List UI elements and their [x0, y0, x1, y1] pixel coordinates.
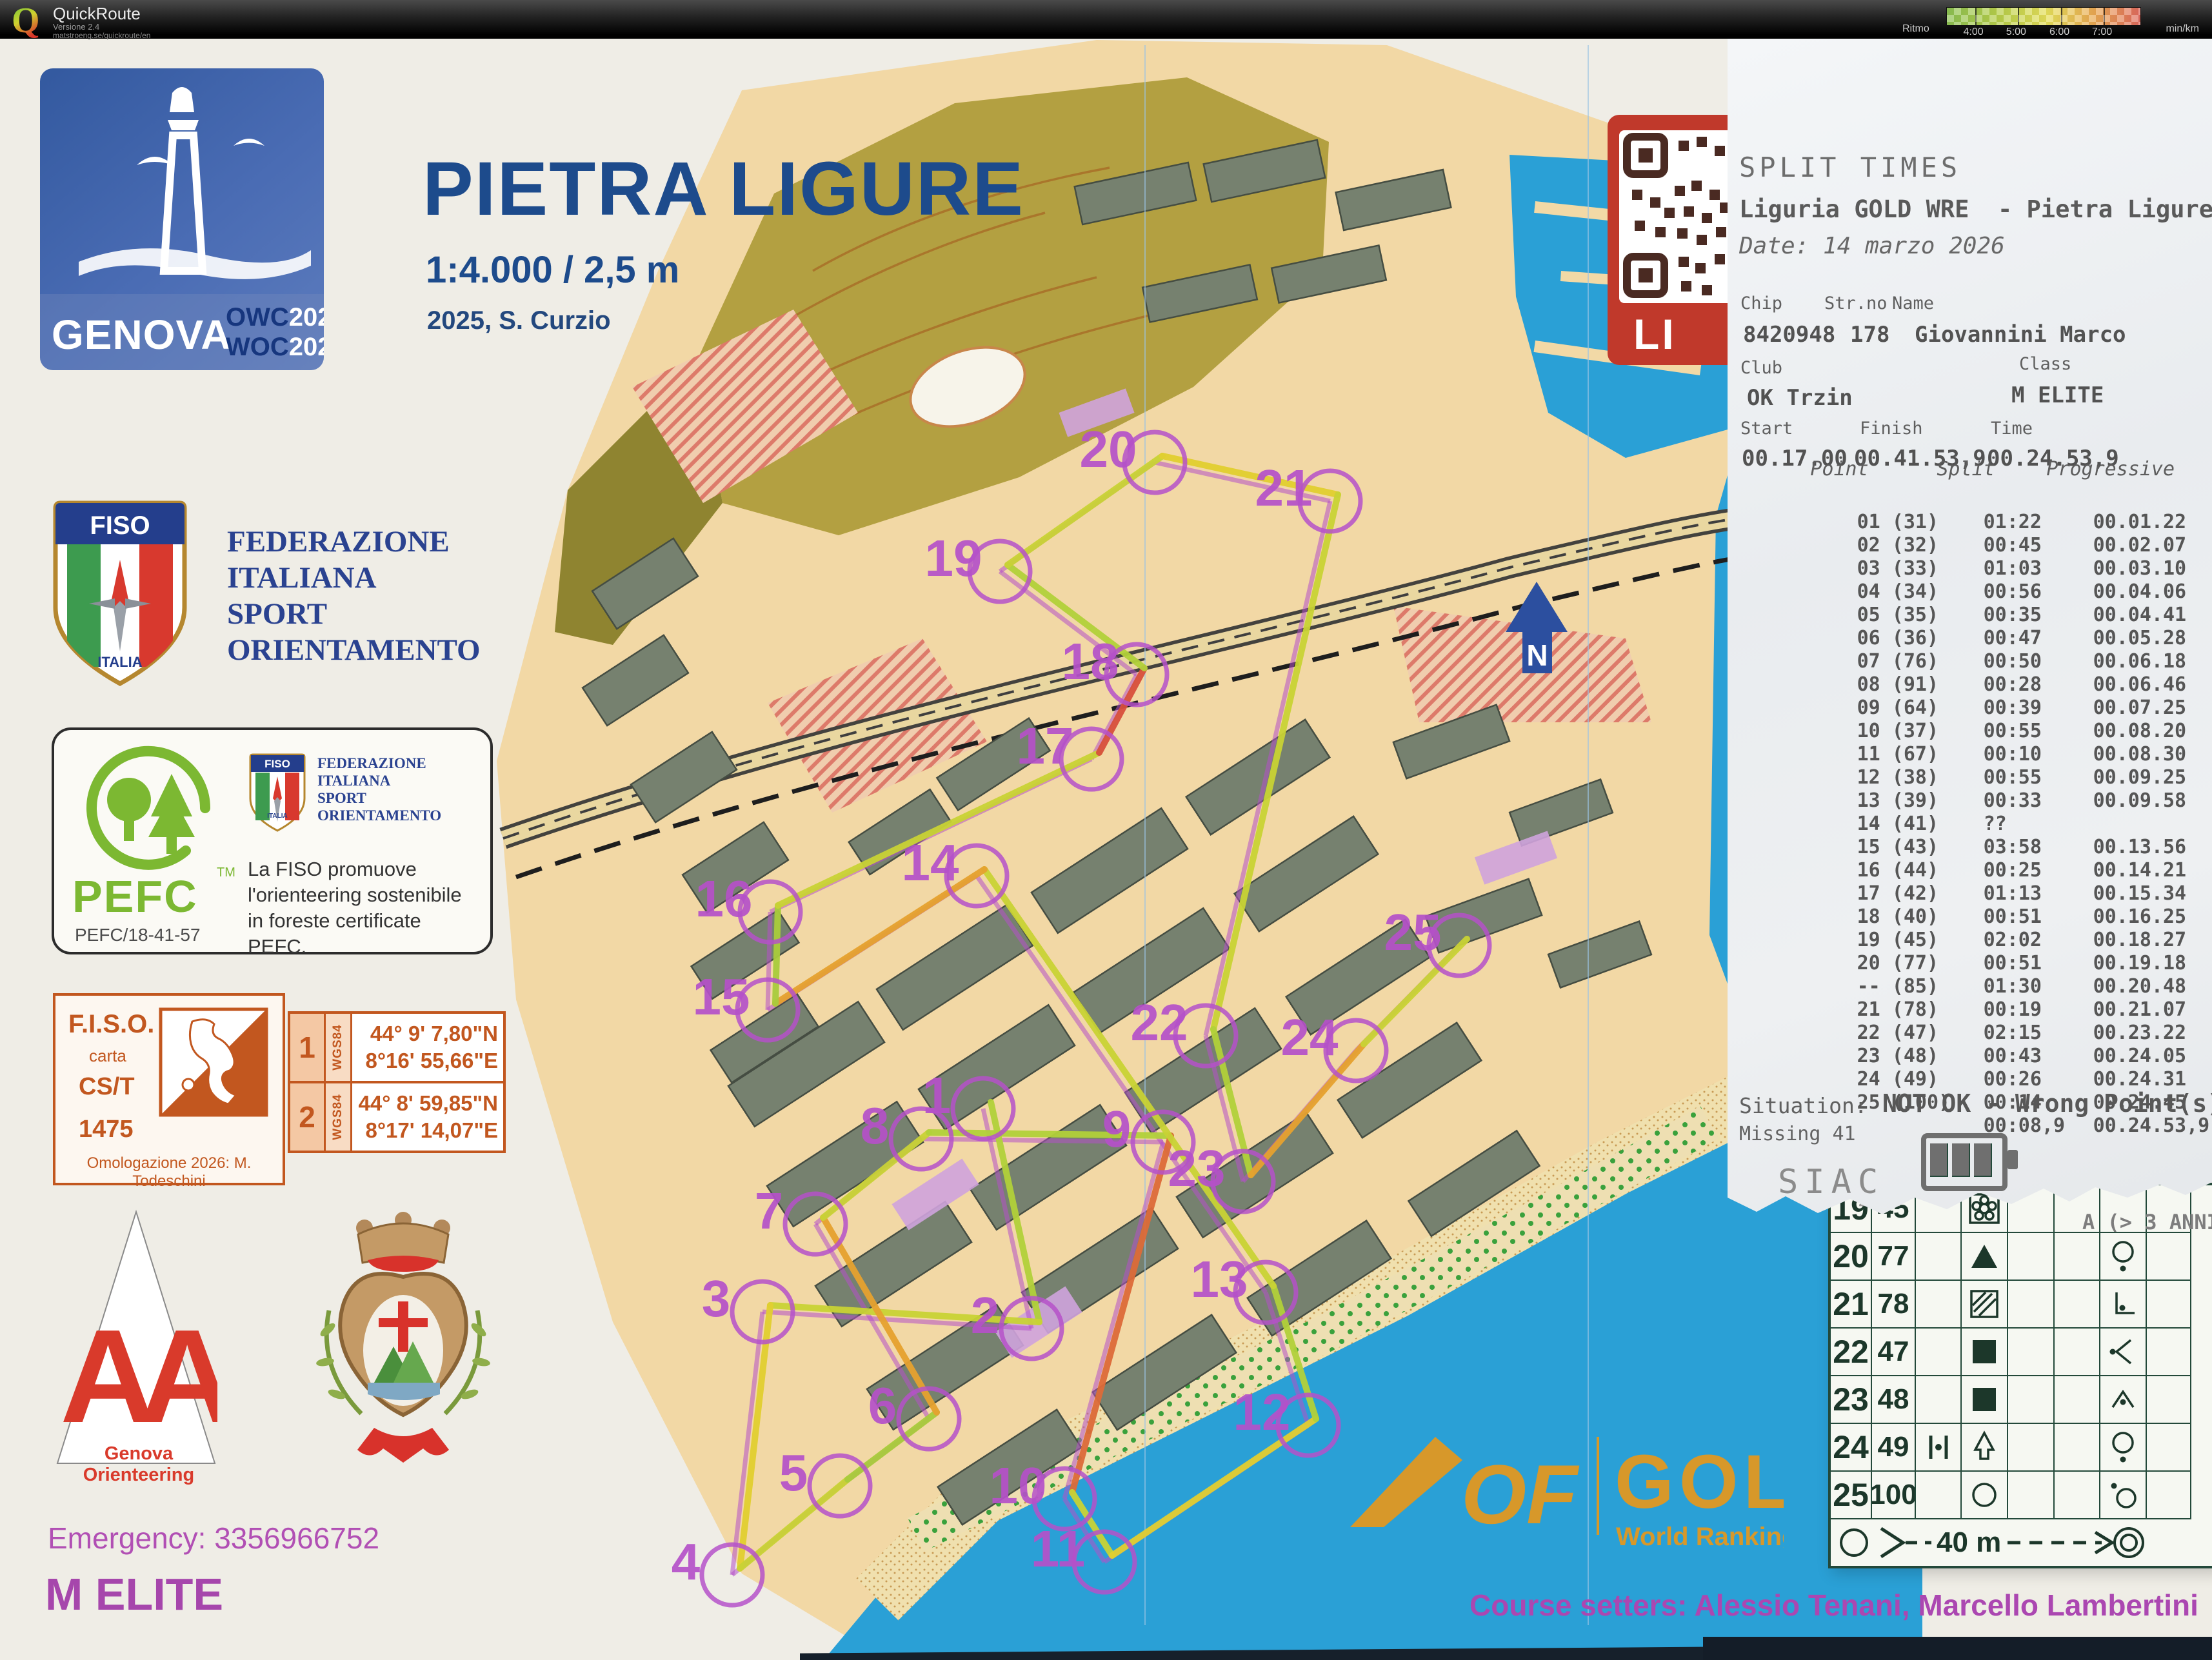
col-e-cell	[2008, 1472, 2055, 1519]
control-code: 100	[1872, 1472, 1916, 1519]
situation-label: Situation:	[1739, 1093, 1868, 1118]
carta-omologazione: Omologazione 2026: M. Todeschini	[61, 1154, 277, 1191]
svg-text:Q: Q	[12, 1, 40, 39]
col-h-cell	[2147, 1329, 2191, 1376]
control-code: 49	[1872, 1424, 1916, 1472]
tick-mark	[2061, 8, 2062, 25]
qr-badge: LI	[1608, 115, 1748, 365]
tick-mark	[2018, 8, 2019, 25]
col-h-cell	[2147, 1424, 2191, 1472]
legend-unit: min/km	[2166, 23, 2199, 35]
genova-owc-logo: GENOVA OWC2024 WOC2026	[40, 68, 324, 370]
split-progressive: 00.09.58	[2093, 789, 2187, 812]
finish-chute-distance: 40 m	[1937, 1527, 2001, 1559]
coord-index: 2	[290, 1083, 326, 1151]
feature-symbol	[1962, 1424, 2008, 1472]
app-title: QuickRoute	[53, 4, 141, 24]
col-h-cell	[2147, 1376, 2191, 1424]
battery-icon	[1921, 1133, 2008, 1191]
control-number: 17	[1017, 717, 1074, 775]
pefc-certificate-box: PEFC TM PEFC/18-41-57 FISO ITALIA FEDERA…	[52, 727, 493, 954]
control-description-card: 2022 A (> 3 ANNI) 19 45 20 77	[1828, 1183, 2212, 1568]
coord-values: 44° 9' 7,80"N8°16' 55,66"E	[352, 1014, 503, 1081]
col-e-cell	[2008, 1233, 2055, 1281]
split-times-receipt: SPLIT TIMES Liguria GOLD WRE - Pietra Li…	[1728, 37, 2212, 1262]
club-label: Club	[1740, 358, 1782, 378]
siac-label: SIAC	[1778, 1163, 1884, 1201]
app-url: matstroeng.se/quickroute/en	[53, 31, 150, 40]
control-order: 22	[1831, 1329, 1872, 1376]
fiso-carta-box: F.I.S.O. carta CS/T 1475 Omologazione 20…	[53, 993, 285, 1185]
tick-mark	[2104, 8, 2105, 25]
col-e-cell	[2008, 1329, 2055, 1376]
app-header: Q QuickRoute Versione 2.4 matstroeng.se/…	[0, 0, 2212, 39]
control-number: 7	[755, 1182, 784, 1240]
col-c-symbol	[1916, 1424, 1962, 1472]
col-h-cell	[2147, 1281, 2191, 1329]
ribbon-icon	[357, 1428, 449, 1463]
control-number: 25	[1384, 904, 1442, 961]
control-number: 3	[702, 1270, 731, 1327]
card-footer: 40 m	[1831, 1519, 2212, 1566]
control-number: 13	[1191, 1250, 1248, 1308]
woc-year: 2026	[289, 333, 324, 361]
feature-symbol	[1962, 1329, 2008, 1376]
control-number: 2	[971, 1287, 1000, 1344]
pefc-tm: TM	[217, 865, 235, 880]
genova-city-label: GENOVA	[52, 311, 232, 359]
feature-symbol	[1962, 1472, 2008, 1519]
start-symbol-icon	[1836, 1523, 1933, 1562]
pefc-cert-number: PEFC/18-41-57	[75, 925, 201, 945]
strno-label: Str.no	[1824, 293, 1888, 313]
control-number: 5	[779, 1444, 808, 1501]
svg-text:AA: AA	[60, 1302, 217, 1450]
control-code: 78	[1872, 1281, 1916, 1329]
position-symbol	[2100, 1424, 2147, 1472]
chip-value: 8420948	[1743, 322, 1835, 348]
quickroute-logo-icon: Q	[9, 1, 48, 39]
federation-name-small: FEDERAZIONE ITALIANA SPORT ORIENTAMENTO	[317, 755, 441, 824]
control-number: 1	[922, 1067, 952, 1124]
class-value: M ELITE	[2011, 382, 2104, 408]
col-f-cell	[2055, 1472, 2100, 1519]
col-f-cell	[2055, 1233, 2100, 1281]
genova-banner: GENOVA OWC2024 WOC2026	[40, 294, 324, 370]
course-setters: Course setters: Alessio Tenani, Marcello…	[1470, 1588, 2198, 1623]
carta-type: CS/T	[79, 1073, 135, 1101]
col-e-cell	[2008, 1424, 2055, 1472]
card-partial-class-text: A (> 3 ANNI)	[2082, 1210, 2212, 1234]
position-symbol	[2100, 1329, 2147, 1376]
col-c-symbol	[1916, 1281, 1962, 1329]
control-order: 23	[1831, 1376, 1872, 1424]
strno-value: 178	[1850, 322, 1889, 348]
route-trace-segment	[775, 905, 778, 1003]
receipt-event: Liguria GOLD WRE - Pietra Ligure	[1739, 195, 2212, 223]
control-number: 14	[902, 834, 959, 891]
coord-values: 44° 8' 59,85"N8°17' 14,07"E	[352, 1083, 503, 1151]
col-h-cell	[2147, 1233, 2191, 1281]
name-value: Giovannini Marco	[1915, 322, 2126, 348]
control-order: 24	[1831, 1424, 1872, 1472]
col-f-cell	[2055, 1424, 2100, 1472]
fiso-shield-logo: FISO ITALIA	[50, 498, 190, 691]
iof-gold-logo: OF GOLD World Ranking Event	[1345, 1419, 1784, 1567]
name-label: Name	[1892, 293, 1934, 313]
scan-edge-corner	[1703, 1637, 2212, 1660]
control-number: 22	[1131, 994, 1188, 1051]
position-symbol	[2100, 1233, 2147, 1281]
control-code: 77	[1872, 1233, 1916, 1281]
coordinates-table: 1 WGS84 44° 9' 7,80"N8°16' 55,66"E 2 WGS…	[288, 1011, 506, 1153]
position-symbol	[2100, 1376, 2147, 1424]
control-card-grid: 19 45 20 77 21 78	[1831, 1185, 2212, 1519]
control-number: 15	[693, 968, 750, 1025]
control-number: 10	[990, 1457, 1047, 1514]
crown-icon	[356, 1212, 450, 1272]
owc-year: 2024	[289, 303, 324, 331]
control-order: 21	[1831, 1281, 1872, 1329]
col-h-cell	[2147, 1472, 2191, 1519]
control-number: 4	[672, 1533, 701, 1590]
control-number: 19	[925, 529, 982, 587]
control-number: 16	[695, 870, 753, 927]
pace-legend: Ritmo 4:00 5:00	[1902, 0, 2199, 39]
col-e-cell	[2008, 1281, 2055, 1329]
woc-label: WOC	[226, 333, 289, 361]
genova-orienteering-logo: AA	[55, 1209, 217, 1467]
fiso-shield-small: FISO ITALIA	[248, 752, 307, 835]
fiso-country: ITALIA	[97, 654, 142, 670]
map-title: PIETRA LIGURE	[423, 145, 1024, 233]
tick-label: 6:00	[2049, 26, 2069, 38]
coord-index: 1	[290, 1014, 326, 1081]
col-c-symbol	[1916, 1329, 1962, 1376]
control-number: 9	[1102, 1100, 1131, 1158]
control-number: 12	[1233, 1383, 1291, 1441]
col-e-cell	[2008, 1376, 2055, 1424]
coordinate-row: 1 WGS84 44° 9' 7,80"N8°16' 55,66"E	[290, 1014, 503, 1081]
control-number: 23	[1168, 1140, 1226, 1197]
control-number: 18	[1062, 633, 1119, 690]
control-order: 20	[1831, 1233, 1872, 1281]
app-version: Versione 2.4	[53, 22, 99, 32]
situation-value: NOT OK - Wrong Point(s)	[1882, 1089, 2212, 1118]
control-code: 47	[1872, 1329, 1916, 1376]
carta-number: 1475	[79, 1116, 134, 1143]
position-symbol	[2100, 1281, 2147, 1329]
iof-sub: World Ranking Event	[1616, 1523, 1784, 1551]
iof-brand: OF	[1461, 1447, 1580, 1541]
col-f-cell	[2055, 1376, 2100, 1424]
control-number: 20	[1080, 420, 1137, 478]
control-number: 24	[1281, 1009, 1339, 1066]
emergency-phone: Emergency: 3356966752	[48, 1521, 379, 1556]
genova-crest	[303, 1201, 503, 1485]
col-f-cell	[2055, 1281, 2100, 1329]
col-c-symbol	[1916, 1233, 1962, 1281]
svg-text:ITALIA: ITALIA	[267, 813, 287, 820]
pace-gradient-bar[interactable]: 4:00 5:00 6:00	[1946, 7, 2141, 26]
fiso-acronym: FISO	[90, 511, 150, 540]
tick-label: 5:00	[2006, 26, 2026, 38]
carta-label: carta	[89, 1046, 126, 1066]
club-name: Genova Orienteering	[61, 1443, 216, 1486]
carta-org: F.I.S.O.	[68, 1010, 154, 1039]
pefc-brand: PEFC	[72, 871, 198, 922]
coord-datum: WGS84	[326, 1083, 352, 1151]
svg-text:FISO: FISO	[264, 758, 290, 770]
map-scale: 1:4.000 / 2,5 m	[426, 248, 679, 291]
coordinate-row: 2 WGS84 44° 8' 59,85"N8°17' 14,07"E	[290, 1081, 503, 1151]
col-c-symbol	[1916, 1472, 1962, 1519]
federation-name: FEDERAZIONE ITALIANA SPORT ORIENTAMENTO	[227, 524, 481, 668]
control-number: 21	[1255, 459, 1313, 517]
split-progressive: 00.24.53,9	[2093, 1114, 2210, 1137]
control-number: 11	[1031, 1520, 1086, 1577]
control-code: 48	[1872, 1376, 1916, 1424]
qr-badge-label: LI	[1633, 310, 1677, 359]
course-class-label: M ELITE	[45, 1568, 223, 1620]
lighthouse-icon	[40, 68, 324, 294]
finish-symbol-icon	[2005, 1523, 2153, 1562]
coord-datum: WGS84	[326, 1014, 352, 1081]
position-symbol	[2100, 1472, 2147, 1519]
club-value: OK Trzin	[1747, 385, 1853, 411]
pefc-logo-icon	[70, 740, 231, 876]
feature-symbol	[1962, 1233, 2008, 1281]
course-leg-line	[768, 912, 770, 1010]
col-f-cell	[2055, 1329, 2100, 1376]
quickroute-window: Q QuickRoute Versione 2.4 matstroeng.se/…	[0, 0, 2212, 1660]
tick-mark	[1975, 8, 1977, 25]
tick-label: 7:00	[2092, 26, 2112, 38]
pefc-statement: La FISO promuove l'orienteering sostenib…	[248, 856, 481, 960]
receipt-title: SPLIT TIMES	[1739, 152, 1961, 183]
tick-label: 4:00	[1964, 26, 1984, 38]
legend-label: Ritmo	[1902, 23, 1929, 35]
control-number: 8	[861, 1097, 890, 1154]
feature-symbol	[1962, 1376, 2008, 1424]
owc-label: OWC	[226, 303, 289, 331]
map-edition: 2025, S. Curzio	[427, 306, 611, 335]
qr-code-icon	[1619, 130, 1737, 303]
north-label: N	[1526, 638, 1548, 672]
italy-map-icon	[159, 1007, 268, 1117]
iof-level: GOLD	[1615, 1439, 1784, 1525]
missing-controls: Missing 41	[1739, 1123, 1856, 1145]
feature-symbol	[1962, 1281, 2008, 1329]
control-number: 6	[868, 1377, 897, 1434]
col-c-symbol	[1916, 1376, 1962, 1424]
receipt-date: Date: 14 marzo 2026	[1739, 233, 2005, 259]
class-label: Class	[2019, 354, 2071, 374]
control-order: 25	[1831, 1472, 1872, 1519]
chip-label: Chip	[1740, 293, 1782, 313]
